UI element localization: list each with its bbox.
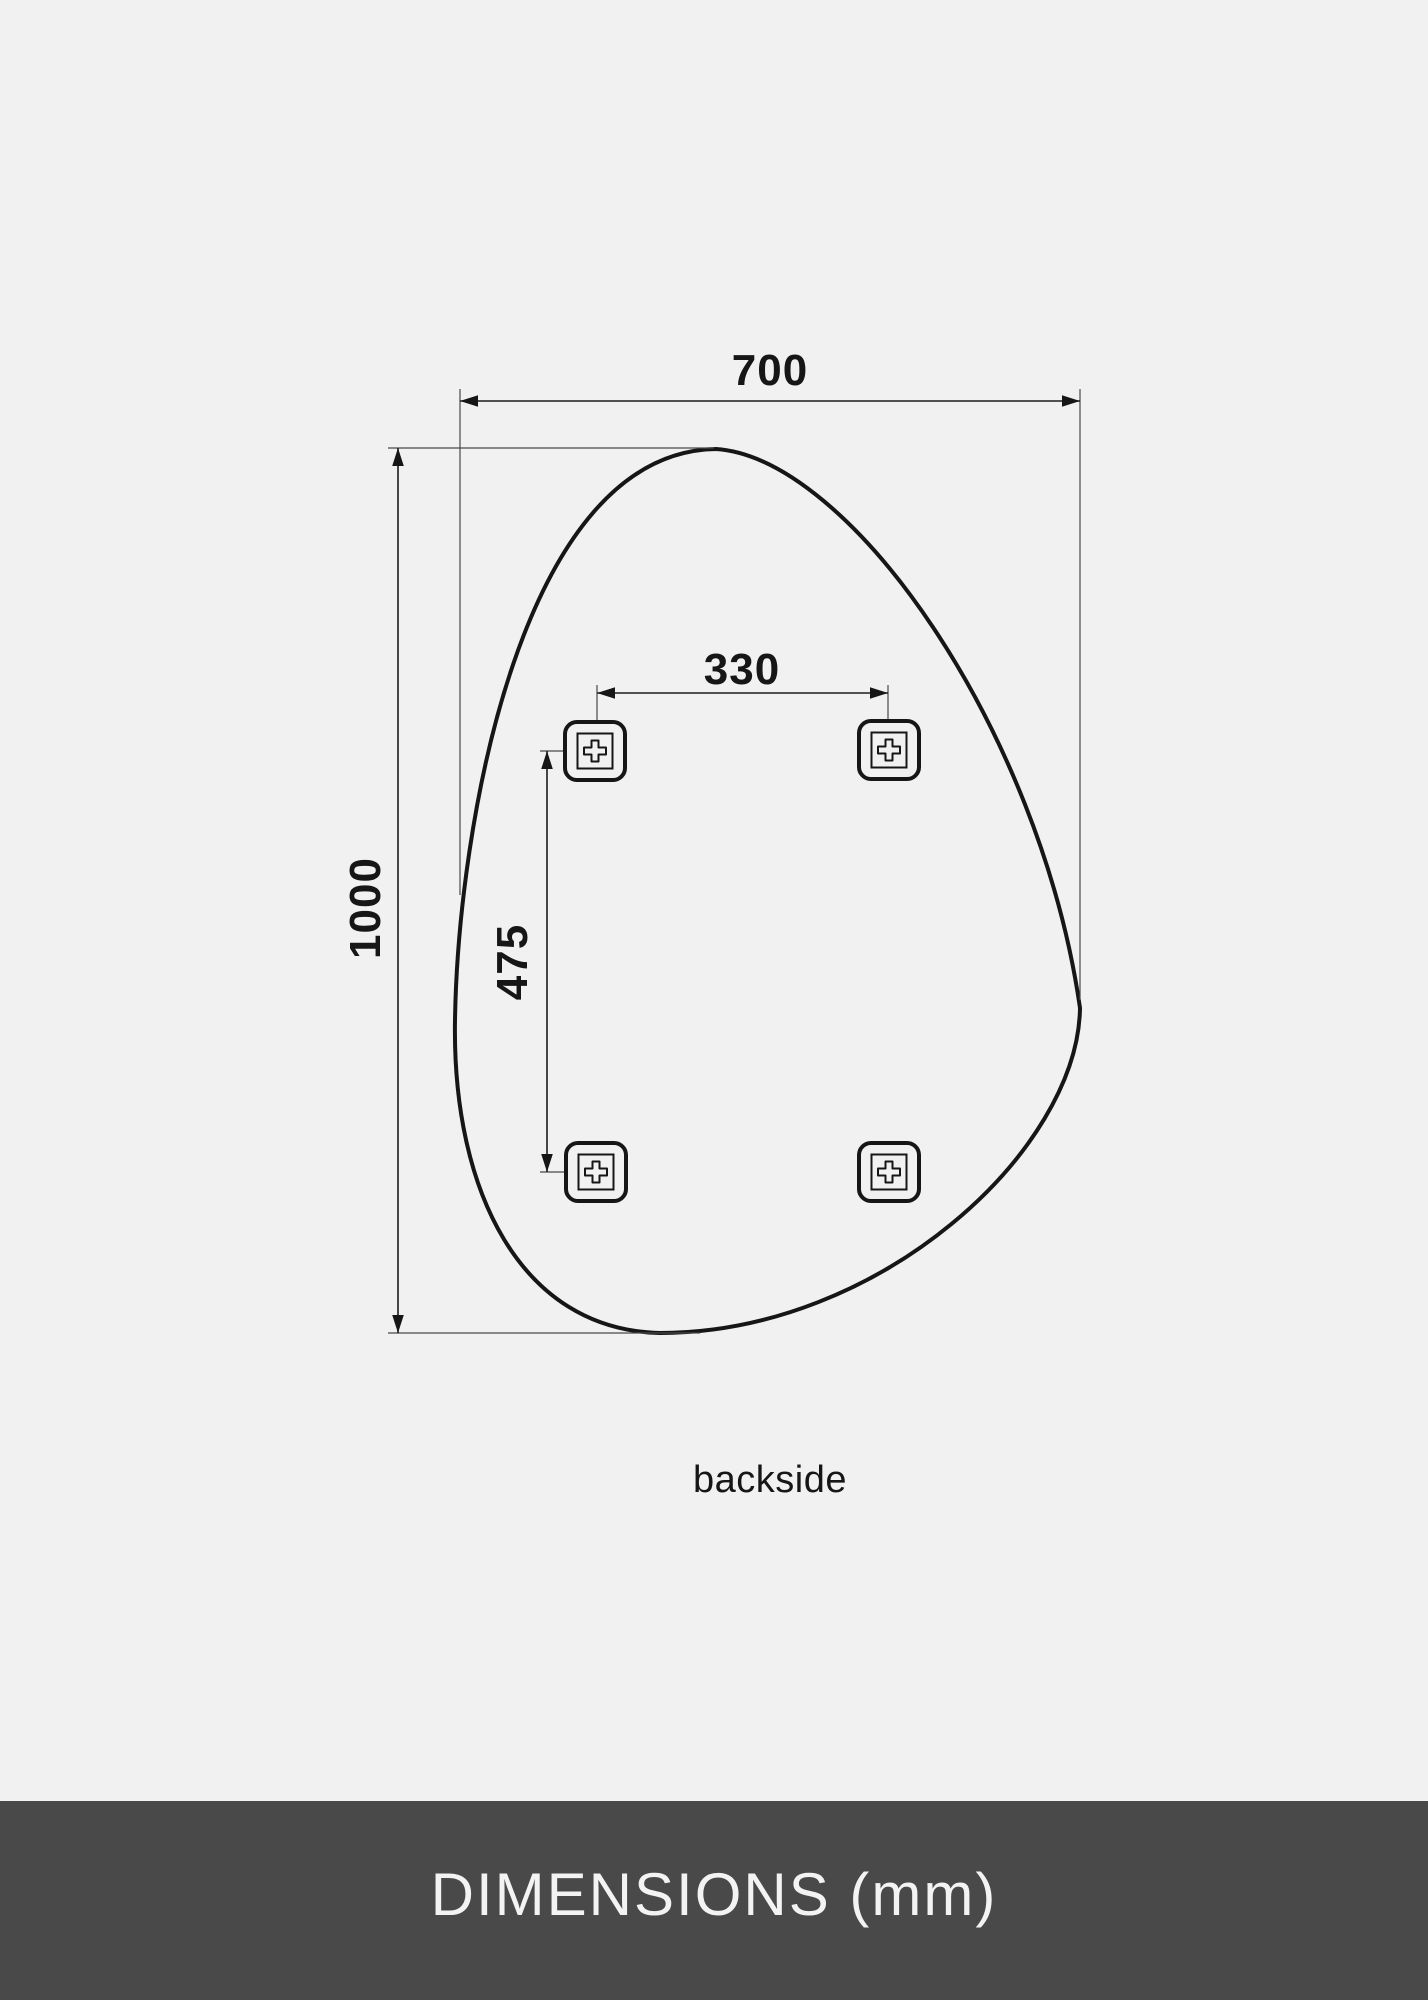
arrowhead-down-icon (541, 1154, 553, 1172)
dimension-diagram-page: { "colors": { "background": "#f1f1f2", "… (0, 0, 1428, 2000)
dimension-bracket-spacing-330: 330 (597, 645, 888, 720)
arrowhead-up-icon (541, 751, 553, 769)
arrowhead-down-icon (392, 1315, 404, 1333)
mounting-bracket-top-right (859, 721, 919, 779)
footer-title: DIMENSIONS (mm) (431, 1860, 998, 1929)
dimension-height-1000: 1000 (341, 448, 714, 1333)
dimension-label-height: 1000 (341, 857, 390, 959)
dimension-label-bracket-vertical: 475 (488, 924, 537, 1000)
dimension-label-width: 700 (732, 346, 808, 395)
arrowhead-up-icon (392, 448, 404, 466)
footer-bar: DIMENSIONS (mm) (0, 1801, 1428, 2000)
dimension-label-bracket-horizontal: 330 (704, 645, 780, 694)
mirror-shape-outline (455, 449, 1080, 1333)
mounting-bracket-top-left (565, 722, 625, 780)
arrowhead-right-icon (1062, 395, 1080, 407)
arrowhead-left-icon (597, 687, 615, 699)
arrowhead-right-icon (870, 687, 888, 699)
arrowhead-left-icon (460, 395, 478, 407)
mirror-backside-diagram: 700 1000 330 475 (0, 0, 1428, 1801)
mounting-bracket-bottom-left (566, 1143, 626, 1201)
dimension-bracket-spacing-475: 475 (488, 751, 566, 1172)
mounting-bracket-bottom-right (859, 1143, 919, 1201)
caption-backside: backside (693, 1459, 847, 1501)
diagram-canvas: 700 1000 330 475 (0, 0, 1428, 1801)
